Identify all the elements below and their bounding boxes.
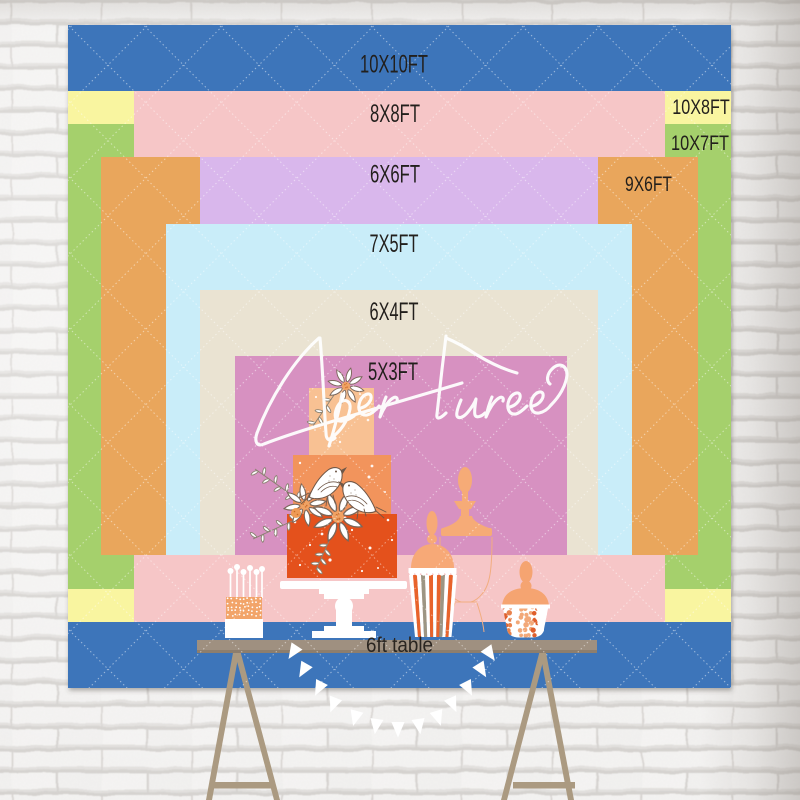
svg-text:10X7FT: 10X7FT <box>671 132 729 155</box>
svg-text:10X10FT: 10X10FT <box>360 51 428 79</box>
svg-text:9X6FT: 9X6FT <box>625 172 672 196</box>
svg-text:6X4FT: 6X4FT <box>370 298 419 326</box>
svg-text:6X6FT: 6X6FT <box>370 161 420 189</box>
svg-text:8X8FT: 8X8FT <box>370 100 420 128</box>
svg-text:5X3FT: 5X3FT <box>368 358 418 386</box>
svg-text:10X8FT: 10X8FT <box>672 96 730 119</box>
svg-text:7X5FT: 7X5FT <box>370 230 419 258</box>
